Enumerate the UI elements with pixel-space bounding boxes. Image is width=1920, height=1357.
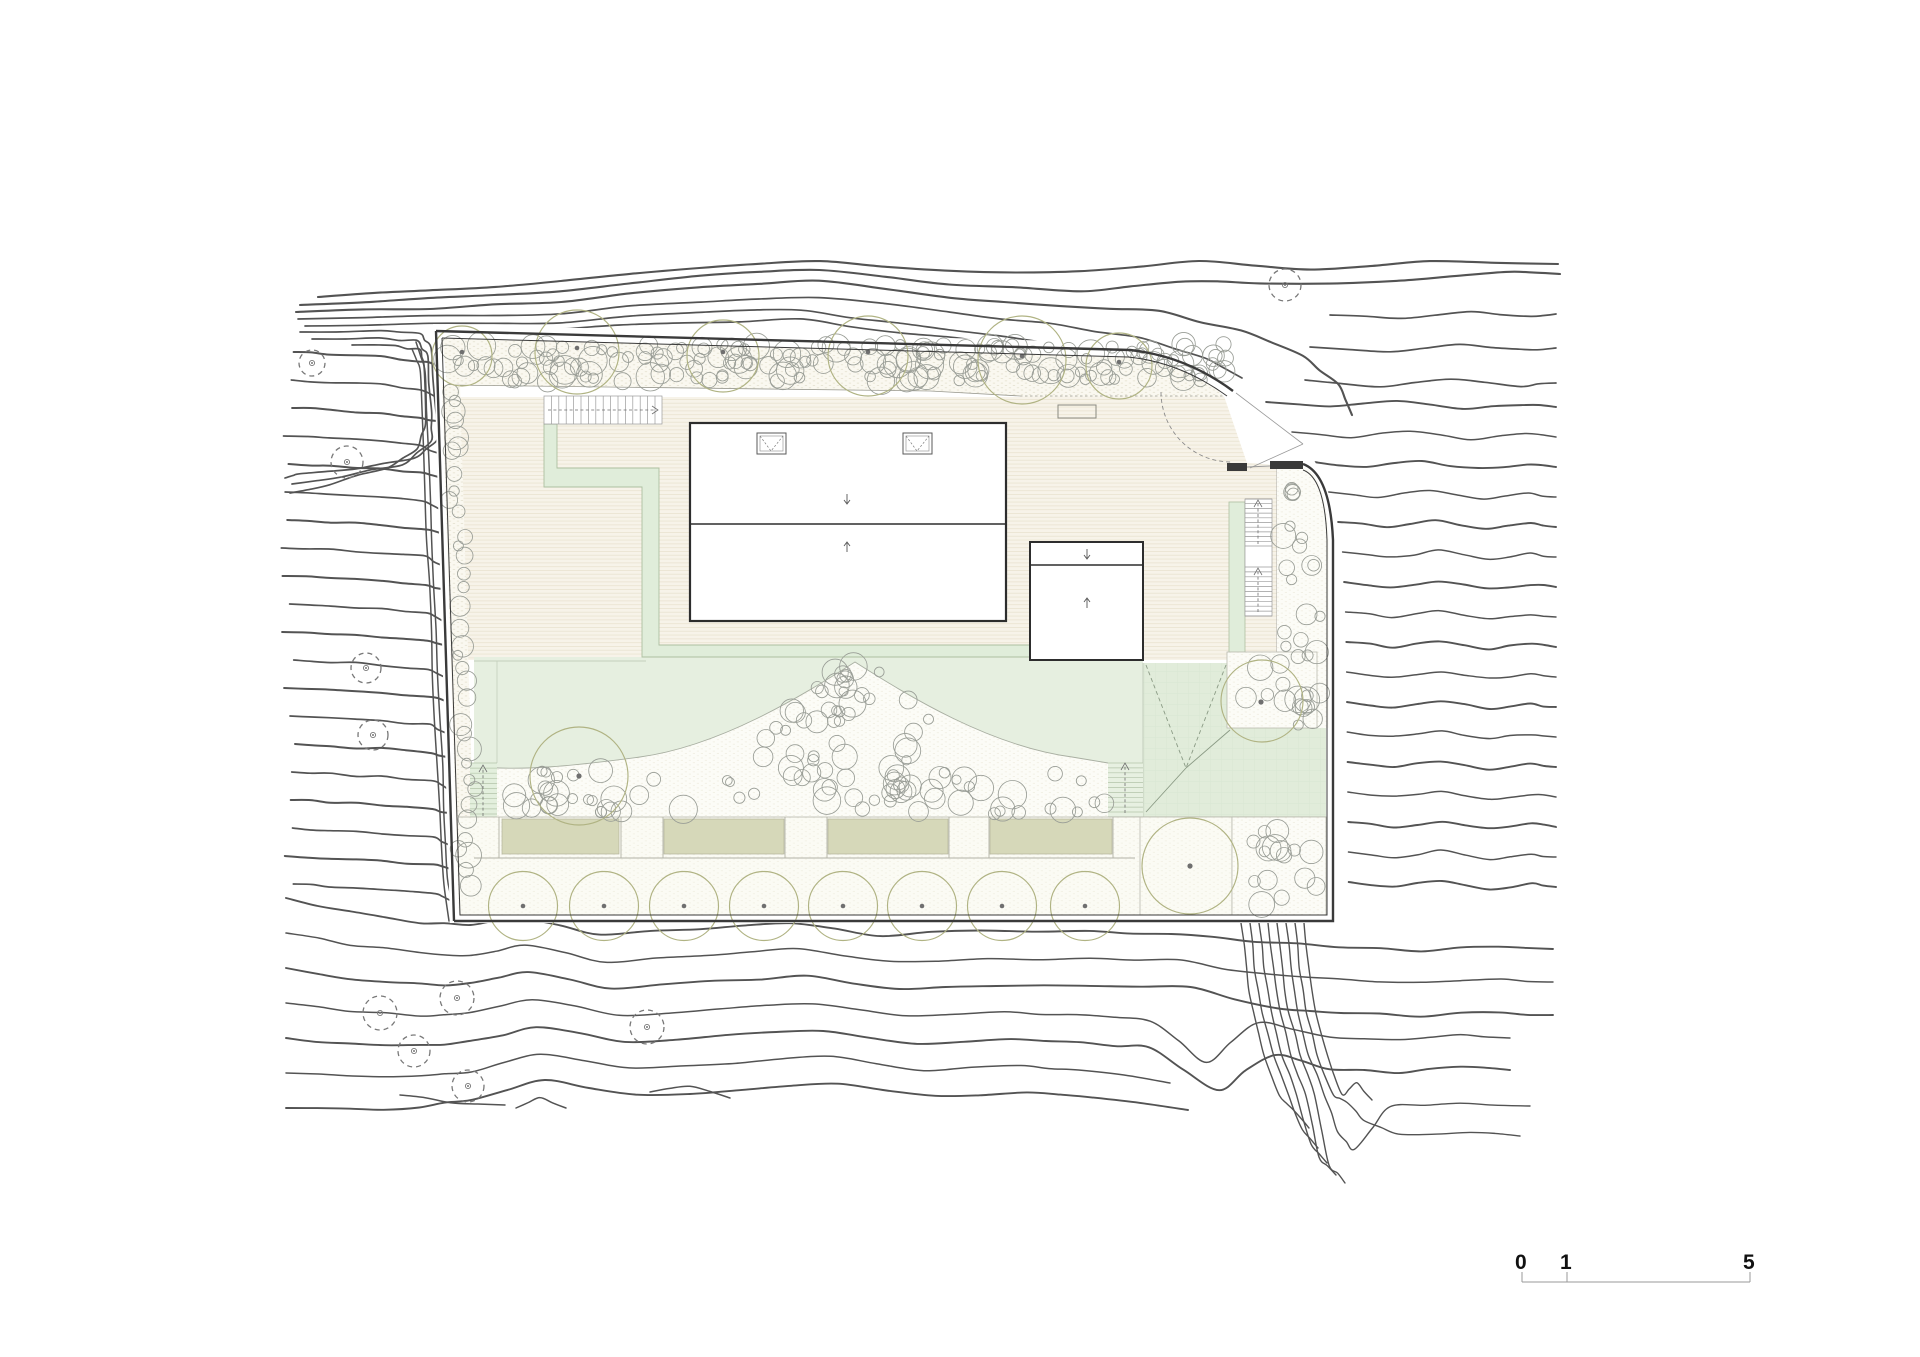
svg-text:5: 5 [1743, 1251, 1755, 1274]
svg-text:0: 0 [1515, 1251, 1527, 1274]
svg-text:1: 1 [1560, 1251, 1572, 1274]
